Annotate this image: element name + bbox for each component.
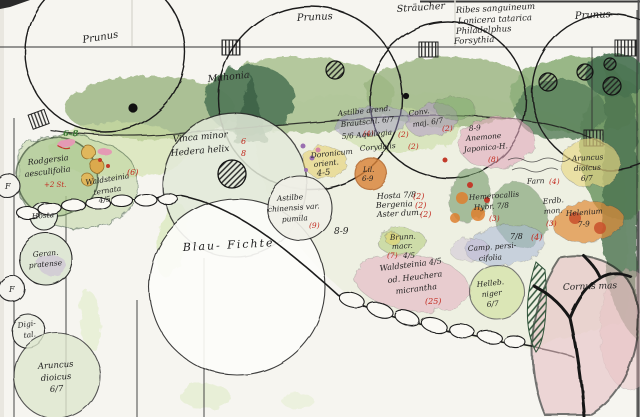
plant-label-digitalis-2: tal. — [23, 329, 36, 340]
count-waldst-heuch: (25) — [425, 297, 441, 306]
plant-label-erdbeere-1: Erdb. — [541, 195, 564, 206]
count-anemone: (8) — [488, 155, 499, 164]
bloom-range-8-9: 8-9 — [334, 227, 349, 237]
plant-label-erdbeere-2: mon. — [543, 205, 563, 216]
fern-mark-2: F — [8, 285, 15, 294]
plant-label-aruncus-left-3: 6/7 — [50, 384, 65, 395]
count-waldsteinia: (6) — [127, 168, 138, 177]
count-hosta78: (2) — [413, 192, 424, 201]
count-hedera: 8 — [241, 149, 246, 158]
plant-label-cornus: Cornus mas — [563, 281, 618, 293]
plant-label-lilium-1: Lil. — [362, 166, 374, 174]
paper-left-edge — [0, 0, 4, 417]
count-rodgersia: +2 St. — [44, 181, 66, 189]
count-farn: (4) — [549, 177, 560, 186]
plant-label-doronicum-3: 4-5 — [315, 168, 331, 179]
count-hemerocallis: (3) — [489, 214, 500, 223]
count-convallaria: (2) — [442, 124, 453, 133]
count-corydalis: (2) — [408, 142, 419, 151]
plant-label-astilbe-chin-3: pumila — [282, 213, 309, 224]
plant-label-brunnera-2: macr. — [392, 241, 413, 251]
plant-label-campanula-3: cifolia — [479, 252, 503, 263]
lilium-circle — [355, 158, 387, 190]
plant-label-brunnera-3: 4/5 — [402, 251, 415, 260]
plant-label-helleborus-3: 6/7 — [486, 299, 499, 309]
garden-plan-scan: Prunus Prunus Prunus Sträucher Ribes san… — [0, 0, 640, 417]
count-astilbe-chin: (9) — [309, 221, 320, 230]
bloom-range-6-8: 6-8 — [63, 129, 78, 139]
plant-label-farn: Farn — [526, 176, 545, 186]
count-brunnera: (7) — [387, 251, 398, 260]
plant-label-aruncus-right-2: dioicus — [574, 163, 602, 173]
count-aster: (2) — [420, 210, 431, 219]
fern-mark-1: F — [4, 182, 11, 191]
plant-label-anemone-1: 8-9 — [468, 123, 481, 133]
count-vinca: 6 — [241, 137, 246, 146]
plant-label-aruncus-right-1: Aruncus — [571, 152, 604, 163]
tree-trunk-symbol — [218, 160, 246, 188]
plant-label-lilium-2: 6-9 — [362, 175, 374, 183]
count-campanula: (4) — [531, 233, 542, 242]
plant-label-prunus-right: Prunus — [574, 9, 611, 22]
count-erdbeere: (3) — [546, 219, 557, 228]
plant-label-helenium-2: 7-9 — [578, 219, 591, 229]
plant-label-prunus-center: Prunus — [296, 11, 333, 24]
plant-label-campanula-1: 7/8 — [510, 232, 523, 241]
garden-plan-drawing: Prunus Prunus Prunus Sträucher Ribes san… — [0, 0, 640, 417]
plant-label-aruncus-right-3: 6/7 — [581, 173, 594, 183]
count-aquilegia: (2) — [398, 130, 409, 139]
